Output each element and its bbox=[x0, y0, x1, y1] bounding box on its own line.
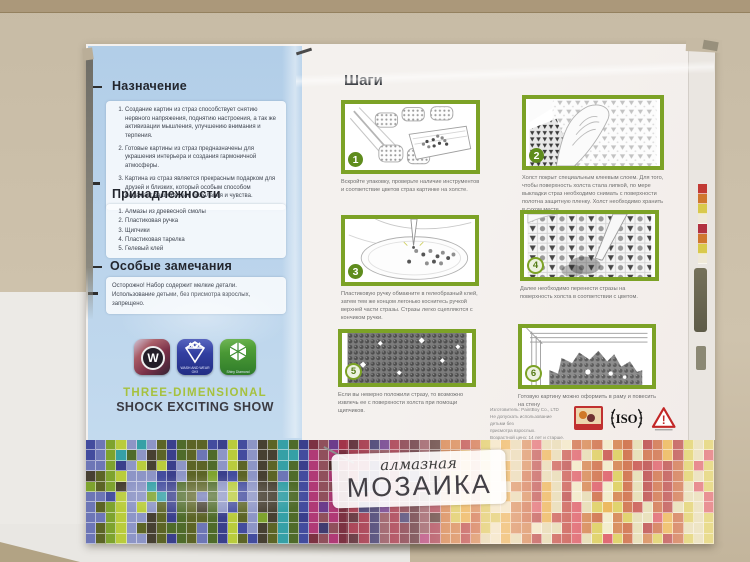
manufacturer-line: присмотра взрослых. bbox=[490, 427, 568, 434]
notes-title: Особые замечания bbox=[110, 259, 232, 273]
mosaic-tile bbox=[116, 523, 126, 533]
mosaic-tile bbox=[208, 461, 218, 471]
mosaic-tile bbox=[96, 534, 106, 544]
step-number-badge: 6 bbox=[525, 365, 542, 382]
mosaic-tile bbox=[96, 461, 106, 471]
mosaic-tile bbox=[197, 450, 207, 460]
no1-caption: WASH AND WEAR OK!! bbox=[177, 366, 213, 375]
mosaic-tile bbox=[116, 450, 126, 460]
step-4: 4 Далее необходимо перенести стразы на п… bbox=[520, 210, 659, 301]
step-5: 5 Если вы неверно положили стразу, то во… bbox=[338, 329, 476, 415]
mosaic-tile bbox=[86, 461, 96, 471]
torn-corner bbox=[82, 47, 94, 60]
mosaic-tile bbox=[106, 523, 116, 533]
mosaic-tile bbox=[319, 461, 329, 471]
mosaic-tile bbox=[289, 534, 299, 544]
mosaic-tile bbox=[147, 461, 157, 471]
mosaic-tile bbox=[127, 461, 137, 471]
slogan-line2: SHOCK EXCITING SHOW bbox=[88, 400, 302, 414]
mosaic-tile bbox=[238, 534, 248, 544]
mosaic-tile bbox=[127, 534, 137, 544]
mosaic-tile bbox=[248, 440, 258, 450]
step-4-caption: Далее необходимо перенести стразы на пов… bbox=[520, 285, 659, 301]
iso-text: ISO bbox=[616, 412, 638, 426]
mosaic-tile bbox=[278, 450, 288, 460]
mosaic-tile bbox=[86, 534, 96, 544]
mosaic-tile bbox=[228, 461, 238, 471]
mosaic-tile bbox=[268, 461, 278, 471]
mosaic-tile bbox=[177, 461, 187, 471]
tape-damage bbox=[694, 268, 707, 332]
mosaic-tile bbox=[309, 534, 319, 544]
brand-main-text: МОЗАИКА bbox=[346, 470, 492, 502]
accessory-item: Щипчики bbox=[125, 227, 278, 236]
step-1-caption: Вскройте упаковку, проверьте наличие инс… bbox=[341, 178, 480, 194]
side-chip bbox=[698, 184, 707, 194]
step-number-badge: 3 bbox=[348, 264, 363, 279]
box-left-edge bbox=[86, 54, 93, 320]
mosaic-tile bbox=[96, 440, 106, 450]
mosaic-tile bbox=[147, 523, 157, 533]
step-6-figure: 6 bbox=[518, 324, 656, 389]
step-6: 6 Готовую картину можно оформить в раму … bbox=[518, 324, 656, 409]
mosaic-tile bbox=[268, 534, 278, 544]
side-chip bbox=[698, 244, 707, 254]
purpose-title: Назначение bbox=[112, 79, 187, 93]
mosaic-tile bbox=[86, 513, 96, 523]
white-ledge-left bbox=[0, 292, 94, 562]
mosaic-tile bbox=[106, 534, 116, 544]
mosaic-tile bbox=[248, 523, 258, 533]
mosaic-tile bbox=[278, 534, 288, 544]
side-chip bbox=[698, 234, 707, 244]
step-4-figure: 4 bbox=[520, 210, 659, 281]
mosaic-tile bbox=[187, 440, 197, 450]
warning-mark: ! bbox=[661, 414, 665, 427]
mosaic-tile bbox=[218, 523, 228, 533]
mosaic-tile bbox=[86, 502, 96, 512]
accessory-item: Алмазы из древесной смолы bbox=[125, 208, 278, 217]
mosaic-tile bbox=[86, 482, 96, 492]
mosaic-tile bbox=[187, 523, 197, 533]
mosaic-tile bbox=[127, 440, 137, 450]
mosaic-tile bbox=[228, 523, 238, 533]
mosaic-tile bbox=[197, 461, 207, 471]
manufacturer-text: Изготовитель: PaintBoy Co., LTD Не допус… bbox=[490, 406, 568, 442]
mosaic-tile bbox=[127, 450, 137, 460]
mosaic-tile bbox=[329, 513, 339, 523]
mosaic-tile bbox=[228, 450, 238, 460]
mosaic-tile bbox=[299, 534, 309, 544]
mosaic-tile bbox=[309, 523, 319, 533]
mosaic-tile bbox=[329, 523, 339, 533]
mosaic-tile bbox=[258, 534, 268, 544]
mosaic-tile bbox=[197, 440, 207, 450]
mosaic-tile bbox=[268, 523, 278, 533]
mosaic-tile bbox=[319, 534, 329, 544]
mosaic-tile bbox=[228, 440, 238, 450]
mosaic-tile bbox=[116, 440, 126, 450]
mosaic-tile bbox=[248, 450, 258, 460]
mosaic-tile bbox=[167, 534, 177, 544]
brand-label: алмазная МОЗАИКА bbox=[331, 450, 506, 509]
mosaic-tile bbox=[177, 523, 187, 533]
mosaic-tile bbox=[218, 440, 228, 450]
warning-triangle-icon: ! bbox=[651, 406, 676, 432]
step-number-badge: 5 bbox=[345, 363, 362, 380]
tape-damage bbox=[696, 346, 706, 370]
mosaic-tile bbox=[258, 461, 268, 471]
mosaic-tile bbox=[258, 450, 268, 460]
mosaic-tile bbox=[299, 440, 309, 450]
mosaic-tile bbox=[319, 513, 329, 523]
step-5-figure: 5 bbox=[338, 329, 476, 387]
mosaic-tile bbox=[167, 440, 177, 450]
mosaic-tile bbox=[238, 440, 248, 450]
mosaic-tile bbox=[299, 523, 309, 533]
mosaic-tile bbox=[96, 523, 106, 533]
crease-glare bbox=[282, 44, 304, 438]
step-3-figure: 3 bbox=[341, 215, 479, 286]
mosaic-tile bbox=[127, 523, 137, 533]
step-1: 1 Вскройте упаковку, проверьте наличие и… bbox=[341, 100, 480, 194]
crease-glare bbox=[296, 60, 714, 88]
mosaic-tile bbox=[208, 450, 218, 460]
mosaic-tile bbox=[218, 534, 228, 544]
child-figure bbox=[579, 411, 587, 419]
mosaic-tile bbox=[177, 534, 187, 544]
mosaic-tile bbox=[278, 461, 288, 471]
product-box: Назначение Создание картин из страз спос… bbox=[86, 44, 714, 544]
mosaic-tile bbox=[177, 440, 187, 450]
step-2: 2 Холст покрыт специальным клеевым слоем… bbox=[522, 95, 664, 215]
side-chip bbox=[698, 254, 707, 264]
mosaic-tile bbox=[86, 492, 96, 502]
mosaic-tile bbox=[157, 523, 167, 533]
glare bbox=[102, 474, 312, 518]
mosaic-tile bbox=[116, 461, 126, 471]
mosaic-tile bbox=[299, 450, 309, 460]
mosaic-tile bbox=[319, 492, 329, 502]
mosaic-tile bbox=[147, 534, 157, 544]
side-chip bbox=[698, 194, 707, 204]
accessory-item: Гелевый клей bbox=[125, 245, 278, 254]
accessory-item: Пластиковая ручка bbox=[125, 217, 278, 226]
mosaic-tile bbox=[106, 450, 116, 460]
footer-info: Изготовитель: PaintBoy Co., LTD Не допус… bbox=[490, 406, 676, 442]
mosaic-tile bbox=[329, 534, 339, 544]
mosaic-tile bbox=[299, 461, 309, 471]
mosaic-tile bbox=[319, 471, 329, 481]
mosaic-tile bbox=[218, 450, 228, 460]
mosaic-tile bbox=[268, 450, 278, 460]
glare bbox=[118, 282, 290, 354]
mosaic-tile bbox=[319, 482, 329, 492]
mosaic-tile bbox=[197, 523, 207, 533]
manufacturer-line: Не допускать использование детьми без bbox=[490, 413, 568, 427]
mosaic-tile bbox=[147, 450, 157, 460]
mosaic-tile bbox=[167, 450, 177, 460]
side-chip bbox=[698, 204, 707, 214]
mosaic-tile bbox=[157, 440, 167, 450]
mosaic-tile bbox=[309, 440, 319, 450]
mosaic-tile bbox=[137, 523, 147, 533]
mosaic-tile bbox=[187, 450, 197, 460]
floor-edge-strip bbox=[0, 0, 750, 13]
caption-bar bbox=[576, 424, 601, 428]
mosaic-tile bbox=[157, 534, 167, 544]
iso-logo-icon: ISO bbox=[609, 406, 644, 432]
mosaic-tile bbox=[289, 440, 299, 450]
mosaic-tile bbox=[238, 450, 248, 460]
step-2-figure: 2 bbox=[522, 95, 664, 170]
mosaic-tile bbox=[268, 440, 278, 450]
manufacturer-line: Изготовитель: PaintBoy Co., LTD bbox=[490, 406, 568, 413]
side-chips bbox=[698, 184, 707, 264]
step-5-caption: Если вы неверно положили стразу, то возм… bbox=[338, 391, 476, 415]
mosaic-tile bbox=[86, 523, 96, 533]
purpose-item: Создание картин из страз способствует сн… bbox=[125, 106, 278, 141]
step-number-badge: 2 bbox=[529, 148, 544, 163]
child-figure bbox=[587, 414, 595, 422]
shiny-caption: Shiny Diamond bbox=[220, 370, 256, 374]
mosaic-tile bbox=[258, 523, 268, 533]
mosaic-tile bbox=[309, 450, 319, 460]
mosaic-tile bbox=[86, 440, 96, 450]
mosaic-tile bbox=[278, 523, 288, 533]
mosaic-tile bbox=[96, 450, 106, 460]
left-info-panel: Назначение Создание картин из страз спос… bbox=[88, 46, 302, 440]
mosaic-tile bbox=[187, 534, 197, 544]
mosaic-tile bbox=[147, 440, 157, 450]
mosaic-tile bbox=[208, 523, 218, 533]
mosaic-tile bbox=[106, 461, 116, 471]
step-3-caption: Пластиковую ручку обмакните в гелеобразн… bbox=[341, 290, 479, 322]
mosaic-tile bbox=[187, 461, 197, 471]
mosaic-tile bbox=[137, 461, 147, 471]
mosaic-tile bbox=[228, 534, 238, 544]
mosaic-tile bbox=[106, 440, 116, 450]
mosaic-tile bbox=[278, 440, 288, 450]
step-1-figure: 1 bbox=[341, 100, 480, 174]
mosaic-tile bbox=[309, 461, 319, 471]
mosaic-tile bbox=[248, 534, 258, 544]
mosaic-tile bbox=[137, 534, 147, 544]
mosaic-tile bbox=[116, 534, 126, 544]
mosaic-tile bbox=[197, 534, 207, 544]
mosaic-tile bbox=[208, 534, 218, 544]
side-chip bbox=[698, 214, 707, 224]
photo-of-product-box: Назначение Создание картин из страз спос… bbox=[0, 0, 750, 562]
slogan-line1: THREE-DIMENSIONAL bbox=[88, 387, 302, 399]
mosaic-tile bbox=[258, 440, 268, 450]
mosaic-tile bbox=[167, 523, 177, 533]
accessories-title: Принадлежности bbox=[112, 187, 221, 201]
mosaic-tile bbox=[137, 450, 147, 460]
mosaic-tile bbox=[289, 461, 299, 471]
side-chip bbox=[698, 224, 707, 234]
mosaic-tile bbox=[218, 461, 228, 471]
mosaic-tile bbox=[86, 450, 96, 460]
mosaic-tile bbox=[157, 450, 167, 460]
mosaic-tile bbox=[137, 440, 147, 450]
accessories-card: Алмазы из древесной смолы Пластиковая ру… bbox=[106, 204, 286, 258]
mosaic-tile bbox=[319, 450, 329, 460]
accessory-item: Пластиковая тарелка bbox=[125, 236, 278, 245]
mosaic-tile bbox=[289, 450, 299, 460]
mosaic-tile bbox=[167, 461, 177, 471]
children-warning-icon bbox=[574, 406, 603, 430]
step-2-caption: Холст покрыт специальным клеевым слоем. … bbox=[522, 174, 664, 215]
mosaic-tile bbox=[238, 461, 248, 471]
mosaic-tile bbox=[319, 523, 329, 533]
mosaic-tile bbox=[238, 523, 248, 533]
mosaic-tile bbox=[157, 461, 167, 471]
step-number-badge: 1 bbox=[348, 152, 363, 167]
step-number-badge: 4 bbox=[527, 257, 544, 274]
mosaic-tile bbox=[289, 523, 299, 533]
mosaic-tile bbox=[208, 440, 218, 450]
purpose-item: Готовые картины из страз предназначены д… bbox=[125, 145, 278, 171]
mosaic-tile bbox=[86, 471, 96, 481]
mosaic-tile bbox=[319, 502, 329, 512]
mosaic-tile bbox=[177, 450, 187, 460]
mosaic-tile bbox=[248, 461, 258, 471]
step-3: 3 Пластиковую ручку обмакните в гелеобра… bbox=[341, 215, 479, 322]
